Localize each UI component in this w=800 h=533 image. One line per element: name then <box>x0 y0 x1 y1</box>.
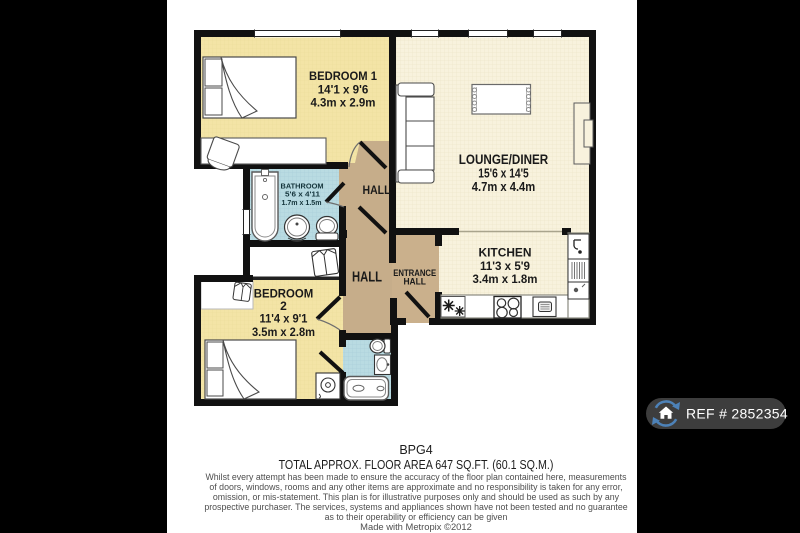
svg-text:BEDROOM 1: BEDROOM 1 <box>309 71 378 83</box>
svg-text:14'1 x 9'6: 14'1 x 9'6 <box>318 85 369 97</box>
svg-text:11'4 x 9'1: 11'4 x 9'1 <box>260 312 308 326</box>
svg-text:HALL: HALL <box>363 183 391 197</box>
svg-text:4.7m x 4.4m: 4.7m x 4.4m <box>472 180 536 194</box>
svg-text:KITCHEN: KITCHEN <box>479 246 532 260</box>
svg-text:LOUNGE/DINER: LOUNGE/DINER <box>459 152 549 167</box>
svg-text:HALL: HALL <box>352 270 382 286</box>
svg-text:15'6 x 14'5: 15'6 x 14'5 <box>478 167 529 181</box>
svg-text:11'3 x 5'9: 11'3 x 5'9 <box>480 259 530 273</box>
svg-text:3.4m x 1.8m: 3.4m x 1.8m <box>473 272 538 286</box>
svg-text:1.7m x 1.5m: 1.7m x 1.5m <box>282 200 322 207</box>
svg-text:REF # 2852354: REF # 2852354 <box>686 406 788 422</box>
svg-text:4.3m x 2.9m: 4.3m x 2.9m <box>311 98 376 110</box>
svg-text:3.5m x 2.8m: 3.5m x 2.8m <box>252 325 315 339</box>
svg-text:5'6 x 4'11: 5'6 x 4'11 <box>285 192 320 199</box>
svg-text:HALL: HALL <box>403 276 426 287</box>
svg-text:BATHROOM: BATHROOM <box>281 184 324 191</box>
